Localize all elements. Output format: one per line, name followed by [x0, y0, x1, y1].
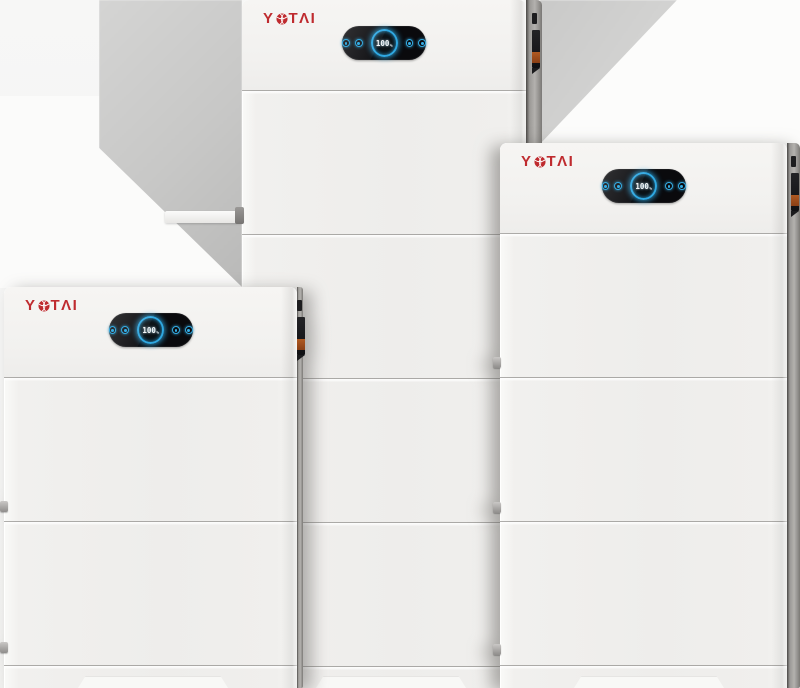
unit-side-panel: [787, 143, 800, 688]
brand-letter-y: Y: [25, 298, 37, 313]
battery-display: 100 %: [602, 169, 686, 203]
indicator-icon-3: [665, 182, 673, 190]
battery-level-value: 100: [376, 39, 390, 48]
seam-line: [242, 234, 526, 238]
connector-latch: [532, 13, 537, 24]
yotai-logo: Y TΛI: [263, 11, 316, 26]
edge-clip: [0, 642, 8, 653]
brand-letter-y: Y: [263, 11, 275, 26]
connector-tip: [791, 211, 799, 217]
indicator-icon-3: [406, 39, 414, 47]
battery-level-ring: 100 %: [630, 172, 657, 200]
connector-body: [532, 30, 540, 68]
indicator-icon-4: [185, 326, 193, 334]
connector-orange-band: [532, 52, 540, 63]
battery-tower-right: Y TΛI 100 %: [500, 143, 800, 688]
edge-clip: [493, 644, 501, 655]
side-connector: [791, 156, 800, 217]
brand-letters-tai: TΛI: [289, 11, 317, 26]
brand-letters-tai: TΛI: [547, 154, 575, 169]
battery-level-ring: 100 %: [371, 29, 398, 57]
globe-icon: [38, 300, 50, 312]
wall-bracket: [165, 211, 243, 223]
indicator-icon-4: [418, 39, 426, 47]
battery-display: 100 %: [109, 313, 193, 347]
battery-tower-left: Y TΛI 100 %: [4, 287, 303, 688]
unit-head-section: Y TΛI 100 %: [242, 0, 526, 90]
seam-line: [500, 521, 787, 525]
connector-tip: [297, 355, 305, 361]
brand-letters-tai: TΛI: [51, 298, 79, 313]
battery-level-unit: %: [156, 331, 159, 336]
battery-level-unit: %: [649, 187, 652, 192]
yotai-logo: Y TΛI: [25, 298, 78, 313]
battery-level-value: 100: [635, 182, 649, 191]
seam-line: [500, 665, 787, 669]
side-connector: [532, 13, 542, 74]
brand-letter-y: Y: [521, 154, 533, 169]
connector-body: [297, 317, 305, 355]
indicator-icon-4: [678, 182, 686, 190]
connector-tip: [532, 68, 540, 74]
seam-line: [500, 377, 787, 381]
seam-line: [4, 377, 297, 381]
connector-orange-band: [297, 339, 305, 350]
indicator-icon-1: [342, 39, 350, 47]
unit-front-panel: Y TΛI 100 %: [4, 287, 297, 688]
base-foot: [574, 676, 724, 688]
yotai-logo: Y TΛI: [521, 154, 574, 169]
indicator-icon-1: [109, 326, 117, 334]
seam-line: [4, 521, 297, 525]
unit-head-section: Y TΛI 100 %: [500, 143, 787, 233]
edge-clip: [493, 357, 501, 368]
base-foot: [78, 676, 228, 688]
seam-line: [242, 90, 526, 94]
seam-line: [4, 665, 297, 669]
globe-icon: [276, 13, 288, 25]
unit-head-section: Y TΛI 100 %: [4, 287, 297, 377]
battery-display: 100 %: [342, 26, 426, 60]
connector-orange-band: [791, 195, 799, 206]
seam-line: [500, 233, 787, 237]
indicator-icon-3: [172, 326, 180, 334]
connector-latch: [297, 300, 302, 311]
edge-clip: [0, 501, 8, 512]
indicator-icon-2: [355, 39, 363, 47]
battery-level-ring: 100 %: [137, 316, 164, 344]
indicator-icon-1: [602, 182, 610, 190]
product-photo-stage: Y TΛI 100 %: [0, 0, 800, 688]
edge-clip: [493, 502, 501, 513]
side-connector: [297, 300, 307, 361]
globe-icon: [534, 156, 546, 168]
indicator-icon-2: [614, 182, 622, 190]
battery-level-unit: %: [390, 44, 393, 49]
indicator-icon-2: [121, 326, 129, 334]
connector-body: [791, 173, 799, 211]
unit-side-panel: [297, 287, 303, 688]
base-foot: [316, 676, 466, 688]
connector-latch: [791, 156, 796, 167]
unit-front-panel: Y TΛI 100 %: [500, 143, 787, 688]
battery-level-value: 100: [142, 326, 156, 335]
